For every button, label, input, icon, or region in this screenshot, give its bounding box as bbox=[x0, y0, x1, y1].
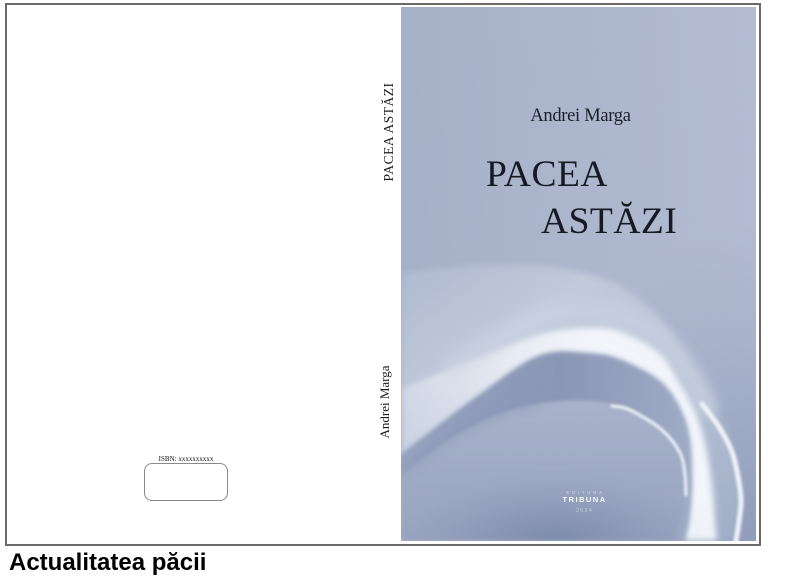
svg-text:TRIBUNA: TRIBUNA bbox=[563, 495, 607, 504]
svg-text:2024: 2024 bbox=[576, 508, 593, 514]
